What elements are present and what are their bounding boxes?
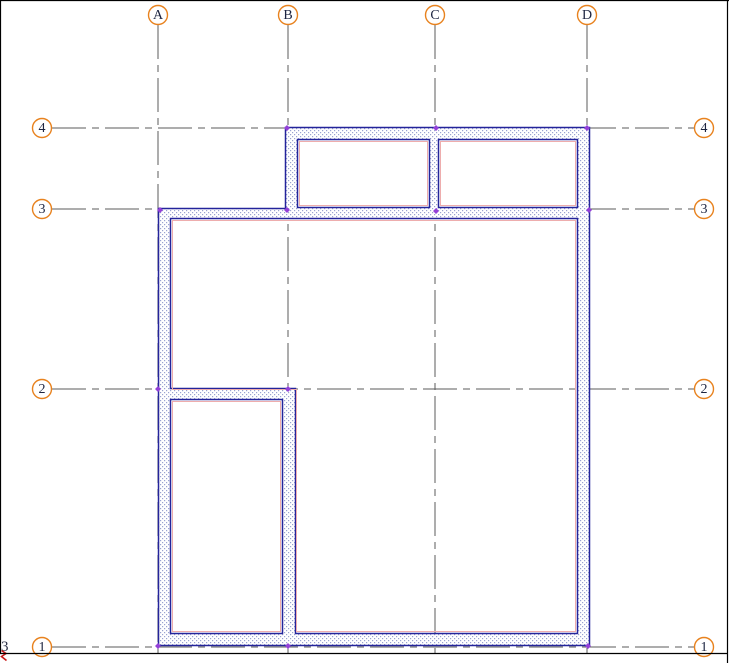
grid-bubble-2-right[interactable]: 2 xyxy=(695,380,714,399)
grid-bubble-B-label: B xyxy=(283,8,292,23)
grid-bubble-4-right-label: 4 xyxy=(701,121,708,136)
grid-bubbles-top: A B C D xyxy=(149,6,597,25)
grid-bubble-B[interactable]: B xyxy=(279,6,298,25)
grid-bubble-D[interactable]: D xyxy=(578,6,597,25)
grid-bubbles-left: 4 3 2 1 xyxy=(33,119,52,657)
grid-bubble-A-label: A xyxy=(153,8,164,23)
grid-bubble-2-right-label: 2 xyxy=(701,382,708,397)
grid-lines xyxy=(52,25,694,653)
finish-face-main-room xyxy=(173,221,576,632)
grid-bubble-C[interactable]: C xyxy=(426,6,445,25)
finish-face-room-a1 xyxy=(173,402,281,632)
floor-plan-canvas[interactable]: A B C D 4 3 2 1 xyxy=(0,0,729,663)
grid-bubble-4-left-label: 4 xyxy=(39,121,46,136)
drawing-viewport[interactable]: A B C D 4 3 2 1 xyxy=(0,0,729,663)
grid-bubble-3-left[interactable]: 3 xyxy=(33,200,52,219)
grid-bubble-1-left-label: 1 xyxy=(39,640,46,655)
wall-endpoint-markers[interactable] xyxy=(155,125,592,649)
grid-bubble-D-label: D xyxy=(582,8,592,23)
grid-bubble-C-label: C xyxy=(430,8,439,23)
grid-bubble-3-left-label: 3 xyxy=(39,202,46,217)
finish-face-room-b4 xyxy=(300,142,428,206)
grid-bubble-A[interactable]: A xyxy=(149,6,168,25)
grid-bubble-2-left[interactable]: 2 xyxy=(33,380,52,399)
grid-bubble-4-left[interactable]: 4 xyxy=(33,119,52,138)
grid-bubble-2-left-label: 2 xyxy=(39,382,46,397)
grid-bubble-4-right[interactable]: 4 xyxy=(695,119,714,138)
grid-bubbles-right: 4 3 2 1 xyxy=(695,119,714,657)
finish-face-room-c4 xyxy=(441,142,576,206)
grid-bubble-3-right[interactable]: 3 xyxy=(695,200,714,219)
grid-bubble-3-right-label: 3 xyxy=(701,202,708,217)
grid-bubble-1-right-label: 1 xyxy=(701,640,708,655)
viewport-borders xyxy=(0,0,729,663)
